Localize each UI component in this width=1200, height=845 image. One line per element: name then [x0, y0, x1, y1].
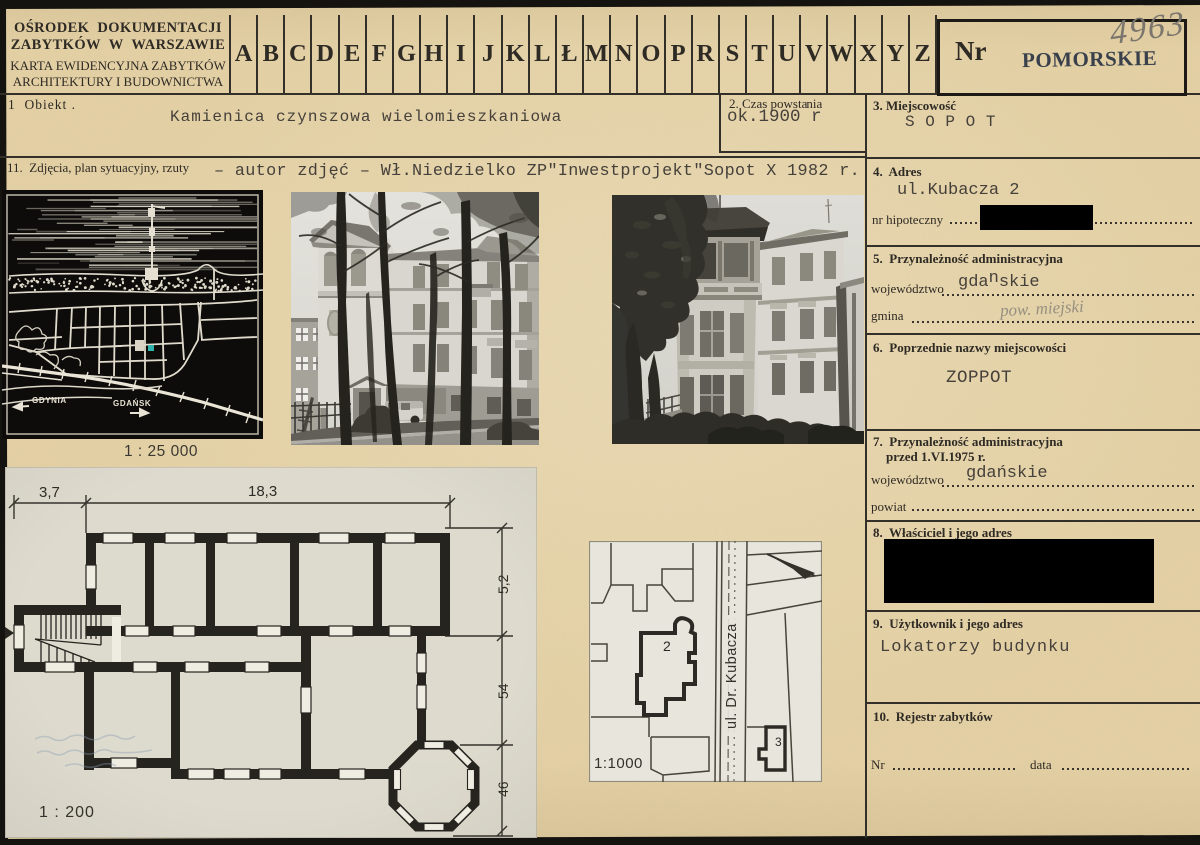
svg-text:5,2: 5,2 [495, 574, 511, 594]
svg-text:3,7: 3,7 [39, 484, 60, 501]
svg-text:GDYNIA: GDYNIA [32, 396, 67, 405]
svg-text:3: 3 [775, 735, 782, 749]
svg-text:1 : 200: 1 : 200 [39, 804, 95, 821]
svg-text:2: 2 [663, 638, 671, 654]
svg-text:54: 54 [495, 683, 511, 699]
svg-text:46: 46 [495, 781, 511, 797]
svg-text:GDAŃSK: GDAŃSK [113, 399, 151, 408]
svg-text:18,3: 18,3 [248, 483, 277, 500]
svg-text:1:1000: 1:1000 [594, 755, 643, 772]
svg-text:ul. Dr. Kubacza: ul. Dr. Kubacza [724, 623, 740, 729]
